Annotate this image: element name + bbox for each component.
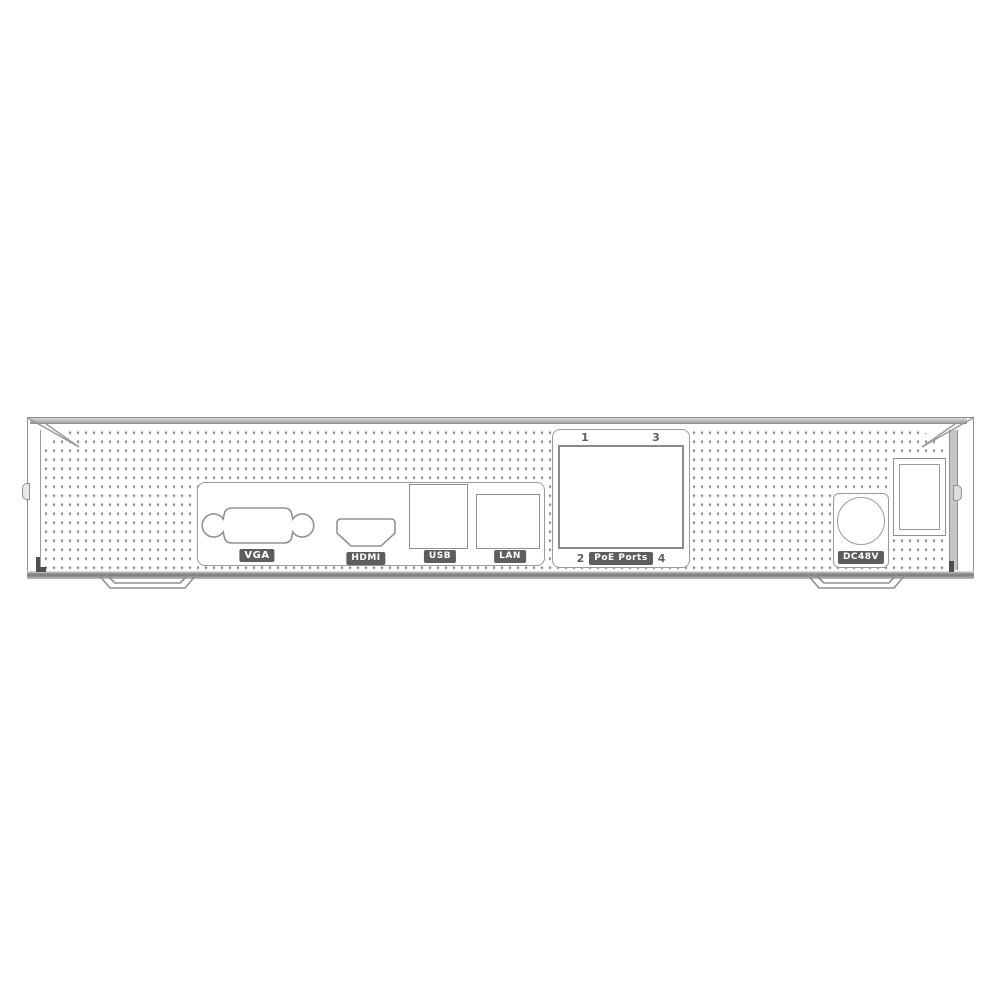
poe-port-number-2: 2 [577, 552, 585, 565]
left-mount-tab [22, 483, 30, 500]
dc48v-label: DC48V [838, 551, 884, 564]
nvr-rear-panel-diagram: 1 3 2 PoE Ports 4 DC48V VGA HDMI USB LAN [0, 0, 1000, 1000]
poe-ports-label: PoE Ports [589, 552, 652, 565]
hdmi-label: HDMI [346, 552, 385, 565]
bottom-left-fold-shadow-2 [36, 567, 46, 572]
poe-port-block [558, 445, 684, 549]
chassis-top-edge [30, 418, 967, 424]
poe-port-number-4: 4 [658, 552, 666, 565]
vga-label: VGA [239, 549, 274, 562]
poe-port-number-1: 1 [578, 431, 592, 444]
poe-port-number-3: 3 [649, 431, 663, 444]
bottom-right-fold-shadow [949, 561, 954, 572]
chassis-bottom-edge [27, 571, 974, 579]
right-mount-tab [953, 485, 962, 501]
usb-label: USB [424, 550, 456, 563]
usb-port [409, 484, 468, 549]
power-switch-rocker [899, 464, 940, 530]
dc-power-connector [837, 497, 885, 545]
lan-label: LAN [494, 550, 526, 563]
chassis-left-fold-line [40, 430, 41, 570]
lan-port [476, 494, 540, 549]
poe-bottom-labels: 2 PoE Ports 4 [552, 551, 690, 565]
